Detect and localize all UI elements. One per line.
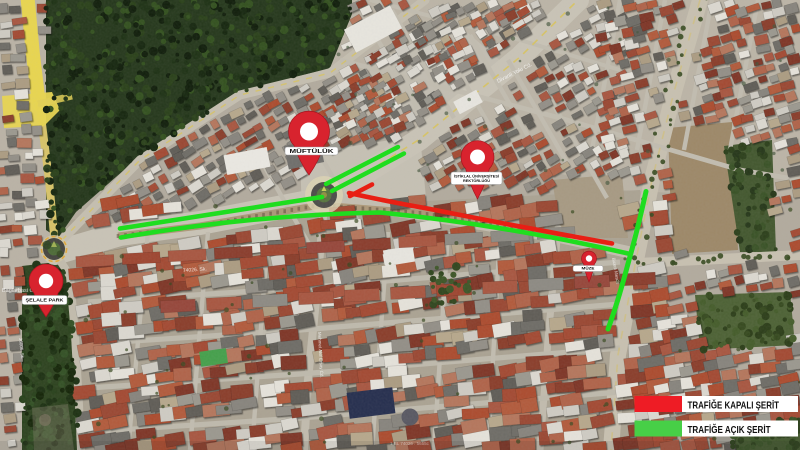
- svg-text:ŞELALE PARK: ŞELALE PARK: [26, 298, 65, 304]
- svg-text:TRAFİĞE AÇIK ŞERİT: TRAFİĞE AÇIK ŞERİT: [688, 423, 771, 436]
- svg-text:MÜZE: MÜZE: [582, 266, 596, 271]
- svg-text:REKTÖRLÜĞÜ: REKTÖRLÜĞÜ: [463, 178, 490, 183]
- svg-text:TRAFİĞE KAPALI ŞERİT: TRAFİĞE KAPALI ŞERİT: [688, 398, 780, 411]
- svg-text:MÜFTÜLÜK: MÜFTÜLÜK: [290, 148, 334, 155]
